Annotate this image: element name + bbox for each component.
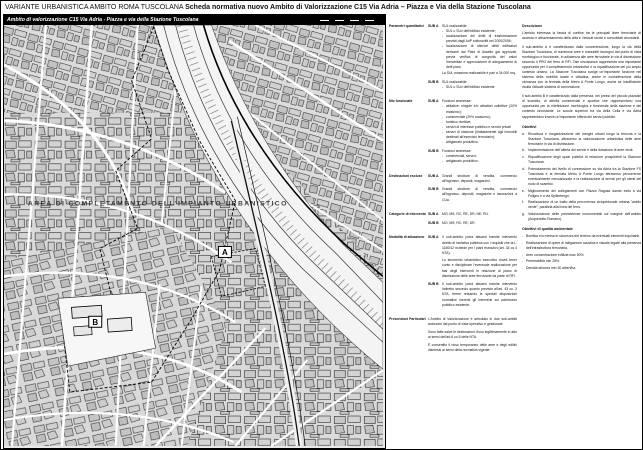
- section-modalita-attuazione: Modalità di attuazione SUB A Il sub-ambi…: [389, 235, 517, 311]
- entry-text: Grandi strutture di vendita, commercio a…: [442, 187, 517, 202]
- bullet-text: servizi di stazione (limitatamente agli …: [446, 130, 517, 140]
- entry-text: Grandi strutture di vendita, commercio a…: [442, 174, 517, 184]
- item-text: Valorizzazione delle preesistenze monume…: [528, 212, 641, 222]
- sub-a-label: SUB A: [428, 174, 442, 184]
- marker-b: B: [89, 316, 102, 327]
- paragraph: È consentito il riuso temporaneo delle a…: [428, 343, 517, 353]
- item-text: Ricucitura e riorganizzazione dei margin…: [528, 132, 641, 147]
- document-page: VARIANTE URBANISTICA AMBITO ROMA TUSCOLA…: [0, 0, 643, 450]
- obiettivi-heading: Obiettivi: [522, 125, 641, 130]
- sub-a-label: SUB A: [428, 24, 442, 76]
- sub-b-label: SUB B: [428, 187, 442, 202]
- paragraph: L'Ambito di Valorizzazione è articolato …: [428, 317, 517, 327]
- sub-b-label: SUB B: [428, 221, 442, 226]
- legend-dashes: [320, 20, 374, 21]
- city-map: AREA DI COMPLETAMENTO DELL'IMPIANTO URBA…: [4, 25, 383, 446]
- page-title-main: Scheda normativa nuovo Ambito di Valoriz…: [185, 4, 531, 11]
- bullet-text: Bonifica e/o messa in sicurezza del terr…: [526, 234, 641, 239]
- paragraph: Sono fatte salve le destinazioni d'uso l…: [428, 330, 517, 340]
- section-parametri-quantitativi: Parametri quantitativi SUB A SUL realizz…: [389, 24, 517, 93]
- marker-a-label: A: [222, 248, 228, 257]
- sub-a-label: SUB A: [428, 99, 442, 145]
- sub-a-label: SUB A: [428, 235, 442, 278]
- bullet-text: Permeabilità min 25%.: [526, 259, 641, 264]
- item-text: Potenziamento del livello di connessione…: [528, 167, 641, 187]
- item-text: Realizzazione di un tratto della percorr…: [528, 200, 641, 210]
- paragraph: Il sub-ambito B è caratterizzato dalla p…: [522, 94, 641, 120]
- paragraph: Il sub-ambito A è caratterizzato dalla c…: [522, 45, 641, 91]
- section-label: Categorie di intervento: [389, 212, 428, 229]
- section-label: Mix funzionale: [389, 99, 428, 167]
- entry-text: MO; MS; RC; RE; DR; NE; RU.: [442, 212, 517, 217]
- bullet-text: Realizzazione di opere di mitigazione ac…: [526, 241, 641, 251]
- paragraph: Lo strumento urbanistico esecutivo dovrà…: [442, 258, 517, 278]
- section-label: Modalità di attuazione: [389, 235, 428, 311]
- descrizione-heading: Descrizione: [522, 24, 641, 29]
- section-categorie-intervento: Categorie di intervento SUB A MO; MS; RC…: [389, 212, 517, 229]
- sub-a-label: SUB A: [428, 212, 442, 217]
- entry-text: MO; MS; RC; RE; DR.: [442, 221, 517, 226]
- sub-b-label: SUB B: [428, 80, 442, 90]
- map-header: Ambito di valorizzazione C15 Via Adria -…: [4, 15, 385, 25]
- marker-b-label: B: [92, 318, 98, 327]
- obiettivi-ambientali-heading: Obiettivi di qualità ambientale: [522, 227, 641, 232]
- bullet-text: localizzazione dei diritti di trasformaz…: [446, 34, 517, 44]
- bullet-text: artigianato produttivo.: [446, 140, 517, 145]
- section-prescrizioni-particolari: Prescrizioni Particolari L'Ambito di Val…: [389, 317, 517, 353]
- bullet-text: Aree concentrazione edilizia max 50%.: [526, 253, 641, 258]
- section-mix-funzionale: Mix funzionale SUB A Funzioni ammesse: -…: [389, 99, 517, 167]
- left-column: Parametri quantitativi SUB A SUL realizz…: [389, 24, 517, 359]
- section-label: Destinazioni escluse: [389, 174, 428, 207]
- bullet-text: localizzazione di ulteriori diritti edif…: [446, 44, 517, 70]
- map-header-title: Ambito di valorizzazione C15 Via Adria -…: [7, 15, 199, 25]
- page-title: VARIANTE URBANISTICA AMBITO ROMA TUSCOLA…: [5, 3, 640, 12]
- bullet-text: Densità arborea min 30 alberi/ha.: [526, 266, 641, 271]
- right-column: Descrizione L'ambito interessa la fascia…: [522, 24, 641, 272]
- paragraph: Il sub-ambito potrà attuarsi tramite int…: [442, 235, 517, 255]
- item-text: Riqualificazione degli spazi pubblici di…: [528, 155, 641, 165]
- sub-b-label: SUB B: [428, 282, 442, 308]
- bullet-text: artigianato produttivo.: [446, 159, 517, 164]
- sub-b-label: SUB B: [428, 149, 442, 164]
- entry-note: La SUL massima realizzabile è pari a 34.…: [442, 71, 517, 76]
- paragraph: L'ambito interessa la fascia di confine …: [522, 31, 641, 41]
- item-text: Miglioramento dei collegamenti con Piazz…: [528, 189, 641, 199]
- section-destinazioni-escluse: Destinazioni escluse SUB A Grandi strutt…: [389, 174, 517, 207]
- marker-a: A: [218, 246, 231, 257]
- bullet-text: SUL o SUv dell'edificio esistente: [446, 85, 517, 90]
- section-label: Parametri quantitativi: [389, 24, 428, 93]
- section-label: Prescrizioni Particolari: [389, 317, 428, 353]
- map-panel: Ambito di valorizzazione C15 Via Adria -…: [3, 14, 386, 449]
- item-text: Implementazione dell'offerta dei servizi…: [528, 148, 641, 153]
- bullet-text: abitative: singole e/o attrattori collet…: [446, 104, 517, 114]
- paragraph: Il sub-ambito potrà attuarsi tramite int…: [442, 282, 517, 308]
- area-label: AREA DI COMPLETAMENTO DELL'IMPIANTO URBA…: [28, 201, 288, 208]
- page-title-prefix: VARIANTE URBANISTICA AMBITO ROMA TUSCOLA…: [5, 4, 185, 11]
